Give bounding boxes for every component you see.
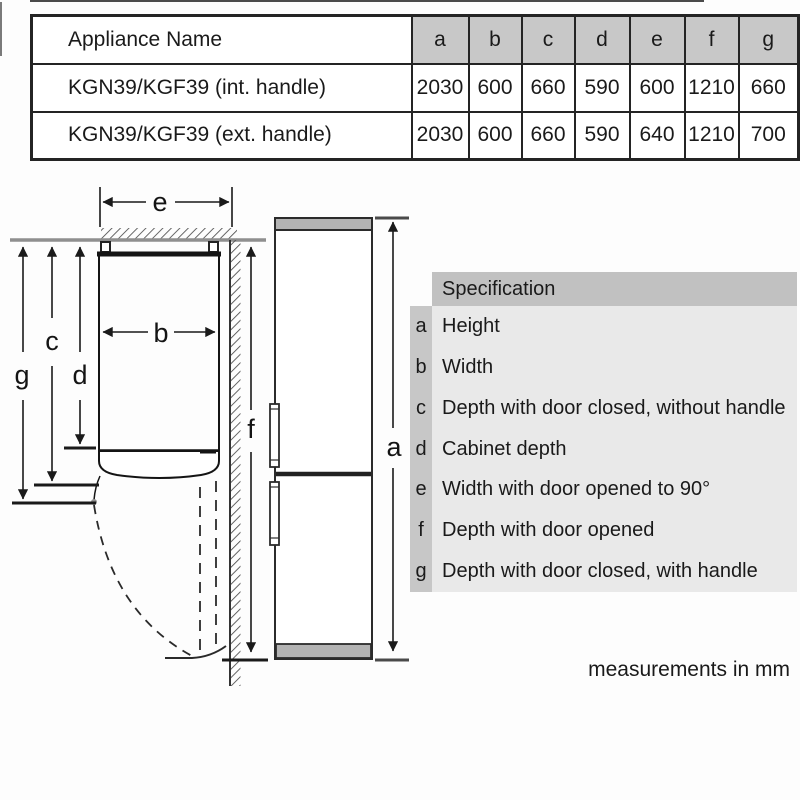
dim-f [222, 247, 268, 660]
upper-door-handle [270, 404, 279, 467]
legend-item-e: eWidth with door opened to 90° [410, 469, 797, 510]
dimension-value-cell: 2030 [412, 64, 469, 112]
wall-hatch-top [101, 228, 237, 240]
door-handle-edge [94, 476, 100, 500]
legend-label: Height [432, 306, 797, 347]
wall-hatch-side [231, 240, 241, 686]
fridge-plinth [276, 644, 371, 658]
door-closed-plan [99, 451, 219, 478]
dim-label-a: a [386, 432, 402, 462]
dimensions-table: Appliance Nameabcdefg KGN39/KGF39 (int. … [30, 14, 800, 161]
measurements-note: measurements in mm [588, 658, 790, 682]
legend-label: Depth with door closed, with handle [432, 551, 797, 592]
dimension-value-cell: 600 [469, 64, 522, 112]
side-view: a [270, 218, 409, 660]
table-row: KGN39/KGF39 (ext. handle)203060066059064… [32, 112, 799, 160]
top-view: e b [10, 187, 268, 686]
door-swing-arc [94, 505, 192, 656]
legend-key: d [410, 429, 432, 470]
appliance-name-cell: KGN39/KGF39 (int. handle) [32, 64, 412, 112]
legend-label: Depth with door opened [432, 510, 797, 551]
dimension-diagram: e b [0, 180, 410, 700]
table-body: KGN39/KGF39 (int. handle)203060066059060… [32, 64, 799, 160]
dim-d [64, 247, 96, 448]
dimension-value-cell: 590 [575, 112, 630, 160]
legend-key: c [410, 388, 432, 429]
legend-label: Depth with door closed, without handle [432, 388, 797, 429]
fridge-top-cap [275, 218, 372, 230]
legend-item-g: gDepth with door closed, with handle [410, 551, 797, 592]
table-header-g: g [739, 16, 799, 64]
dimension-value-cell: 600 [630, 64, 685, 112]
legend-key: g [410, 551, 432, 592]
legend-item-f: fDepth with door opened [410, 510, 797, 551]
legend-item-b: bWidth [410, 347, 797, 388]
cabinet-plan-outline [97, 252, 221, 450]
lower-door-handle [270, 482, 279, 545]
dimension-value-cell: 660 [522, 64, 575, 112]
door-open-tip [165, 646, 226, 658]
dimension-value-cell: 700 [739, 112, 799, 160]
dimension-value-cell: 660 [739, 64, 799, 112]
legend-header: Specification [432, 272, 797, 306]
dim-label-e: e [152, 187, 167, 217]
legend-label: Cabinet depth [432, 429, 797, 470]
table-header-b: b [469, 16, 522, 64]
specification-legend: Specification aHeightbWidthcDepth with d… [410, 272, 797, 592]
legend-rows: aHeightbWidthcDepth with door closed, wi… [410, 306, 797, 592]
table-header-a: a [412, 16, 469, 64]
table-header-d: d [575, 16, 630, 64]
appliance-name-cell: KGN39/KGF39 (ext. handle) [32, 112, 412, 160]
legend-key: e [410, 469, 432, 510]
hinge-left [101, 242, 110, 252]
dimension-value-cell: 1210 [685, 112, 739, 160]
dimension-value-cell: 2030 [412, 112, 469, 160]
table-header-appliance-name: Appliance Name [32, 16, 412, 64]
scan-edge-left [0, 2, 2, 56]
table-header-f: f [685, 16, 739, 64]
dim-label-b: b [153, 318, 168, 348]
legend-key: a [410, 306, 432, 347]
fridge-body [275, 218, 372, 659]
legend-key: b [410, 347, 432, 388]
dim-label-f: f [247, 414, 255, 444]
dimension-value-cell: 600 [469, 112, 522, 160]
table-header-row: Appliance Nameabcdefg [32, 16, 799, 64]
dimension-value-cell: 640 [630, 112, 685, 160]
legend-item-d: dCabinet depth [410, 429, 797, 470]
scan-edge-top [30, 0, 704, 2]
legend-key: f [410, 510, 432, 551]
dim-label-g: g [14, 360, 29, 390]
table-header-e: e [630, 16, 685, 64]
dim-label-d: d [72, 360, 87, 390]
hinge-right [209, 242, 218, 252]
dimension-value-cell: 660 [522, 112, 575, 160]
legend-label: Width with door opened to 90° [432, 469, 797, 510]
dimension-value-cell: 590 [575, 64, 630, 112]
legend-item-c: cDepth with door closed, without handle [410, 388, 797, 429]
legend-item-a: aHeight [410, 306, 797, 347]
legend-label: Width [432, 347, 797, 388]
spec-sheet-page: { "table": { "header": ["Appliance Name"… [0, 0, 800, 800]
dim-label-c: c [45, 326, 59, 356]
dimension-value-cell: 1210 [685, 64, 739, 112]
table-header-c: c [522, 16, 575, 64]
table-row: KGN39/KGF39 (int. handle)203060066059060… [32, 64, 799, 112]
